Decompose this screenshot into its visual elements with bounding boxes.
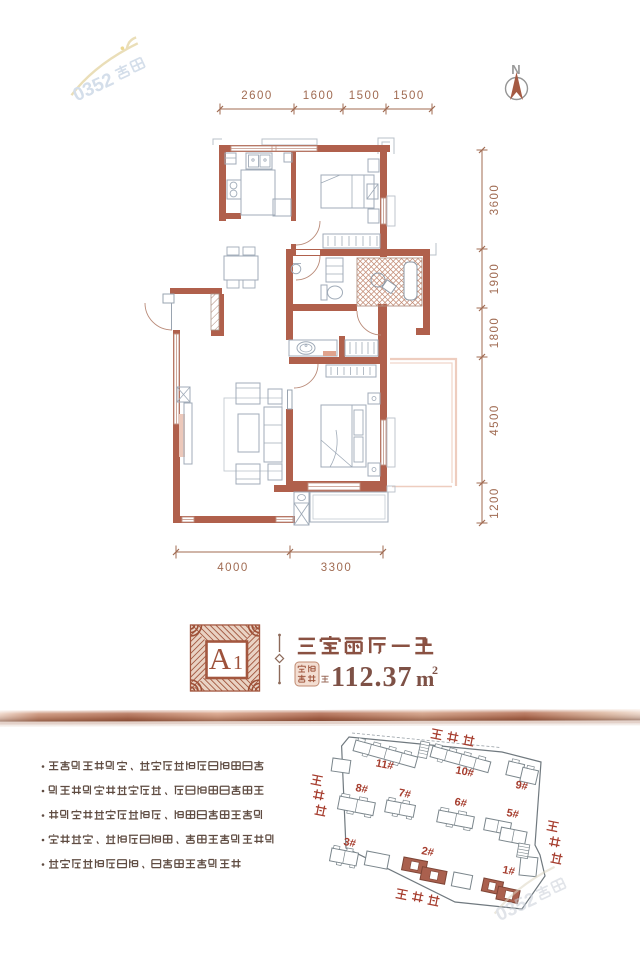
svg-text:4000: 4000 <box>217 562 249 574</box>
svg-text:1500: 1500 <box>349 90 381 102</box>
svg-text:112.37: 112.37 <box>331 662 412 693</box>
svg-text:4500: 4500 <box>489 404 501 436</box>
svg-text:2#: 2# <box>420 845 434 859</box>
svg-text:3300: 3300 <box>321 562 353 574</box>
svg-text:1900: 1900 <box>489 263 501 295</box>
svg-text:5#: 5# <box>505 807 519 821</box>
svg-text:A: A <box>209 641 232 676</box>
svg-text:2600: 2600 <box>241 90 273 102</box>
svg-text:2: 2 <box>432 663 438 677</box>
svg-text:9#: 9# <box>514 779 528 793</box>
svg-text:8#: 8# <box>354 782 368 796</box>
svg-text:1500: 1500 <box>393 90 425 102</box>
svg-text:3#: 3# <box>342 836 356 850</box>
svg-text:1: 1 <box>233 652 243 674</box>
svg-text:3600: 3600 <box>489 184 501 216</box>
svg-text:7#: 7# <box>397 787 411 801</box>
svg-text:1800: 1800 <box>489 317 501 349</box>
svg-text:1600: 1600 <box>303 90 335 102</box>
svg-text:6#: 6# <box>453 796 467 810</box>
svg-text:1#: 1# <box>501 864 515 878</box>
svg-text:1200: 1200 <box>489 487 501 519</box>
